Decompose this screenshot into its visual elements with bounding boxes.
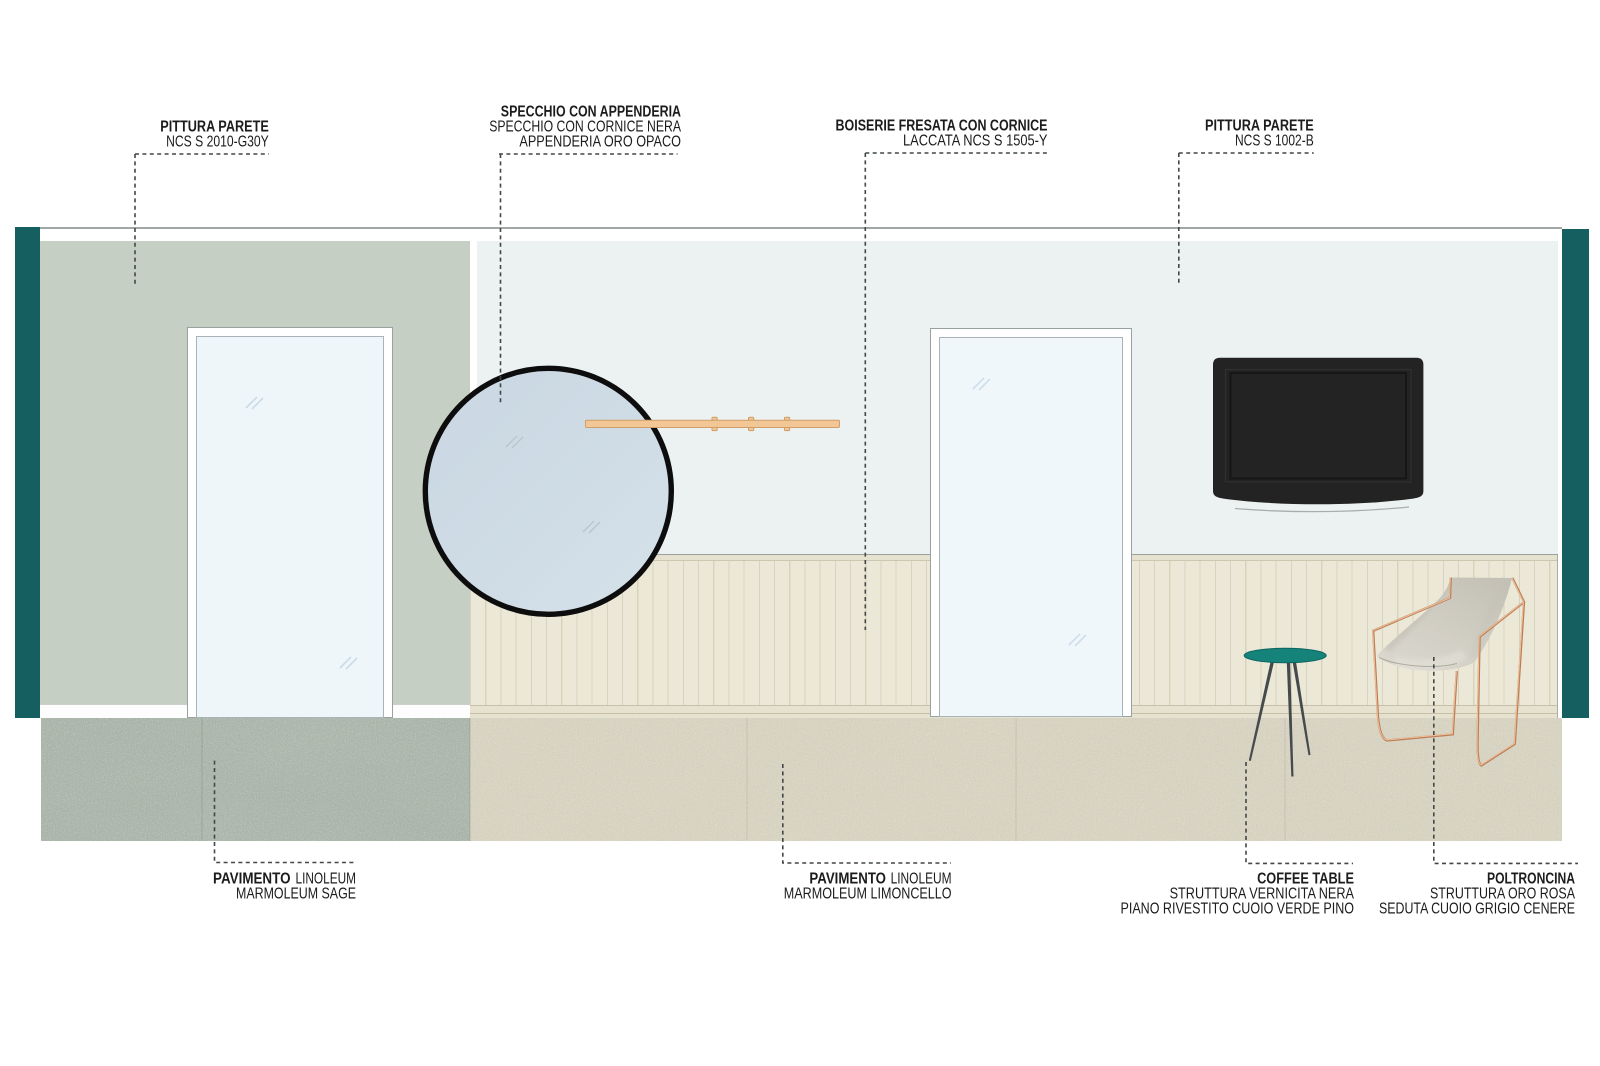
svg-text:APPENDERIA ORO OPACO: APPENDERIA ORO OPACO [519,133,681,150]
svg-text:SEDUTA CUOIO GRIGIO CENERE: SEDUTA CUOIO GRIGIO CENERE [1379,901,1575,918]
svg-text:NCS S 2010-G30Y: NCS S 2010-G30Y [166,134,269,151]
svg-text:PIANO RIVESTITO CUOIO VERDE PI: PIANO RIVESTITO CUOIO VERDE PINO [1121,901,1355,918]
svg-text:NCS S 1002-B: NCS S 1002-B [1235,133,1314,150]
svg-text:MARMOLEUM LIMONCELLO: MARMOLEUM LIMONCELLO [784,886,952,903]
svg-text:MARMOLEUM SAGE: MARMOLEUM SAGE [236,886,356,903]
svg-text:LACCATA NCS S 1505-Y: LACCATA NCS S 1505-Y [903,133,1048,150]
